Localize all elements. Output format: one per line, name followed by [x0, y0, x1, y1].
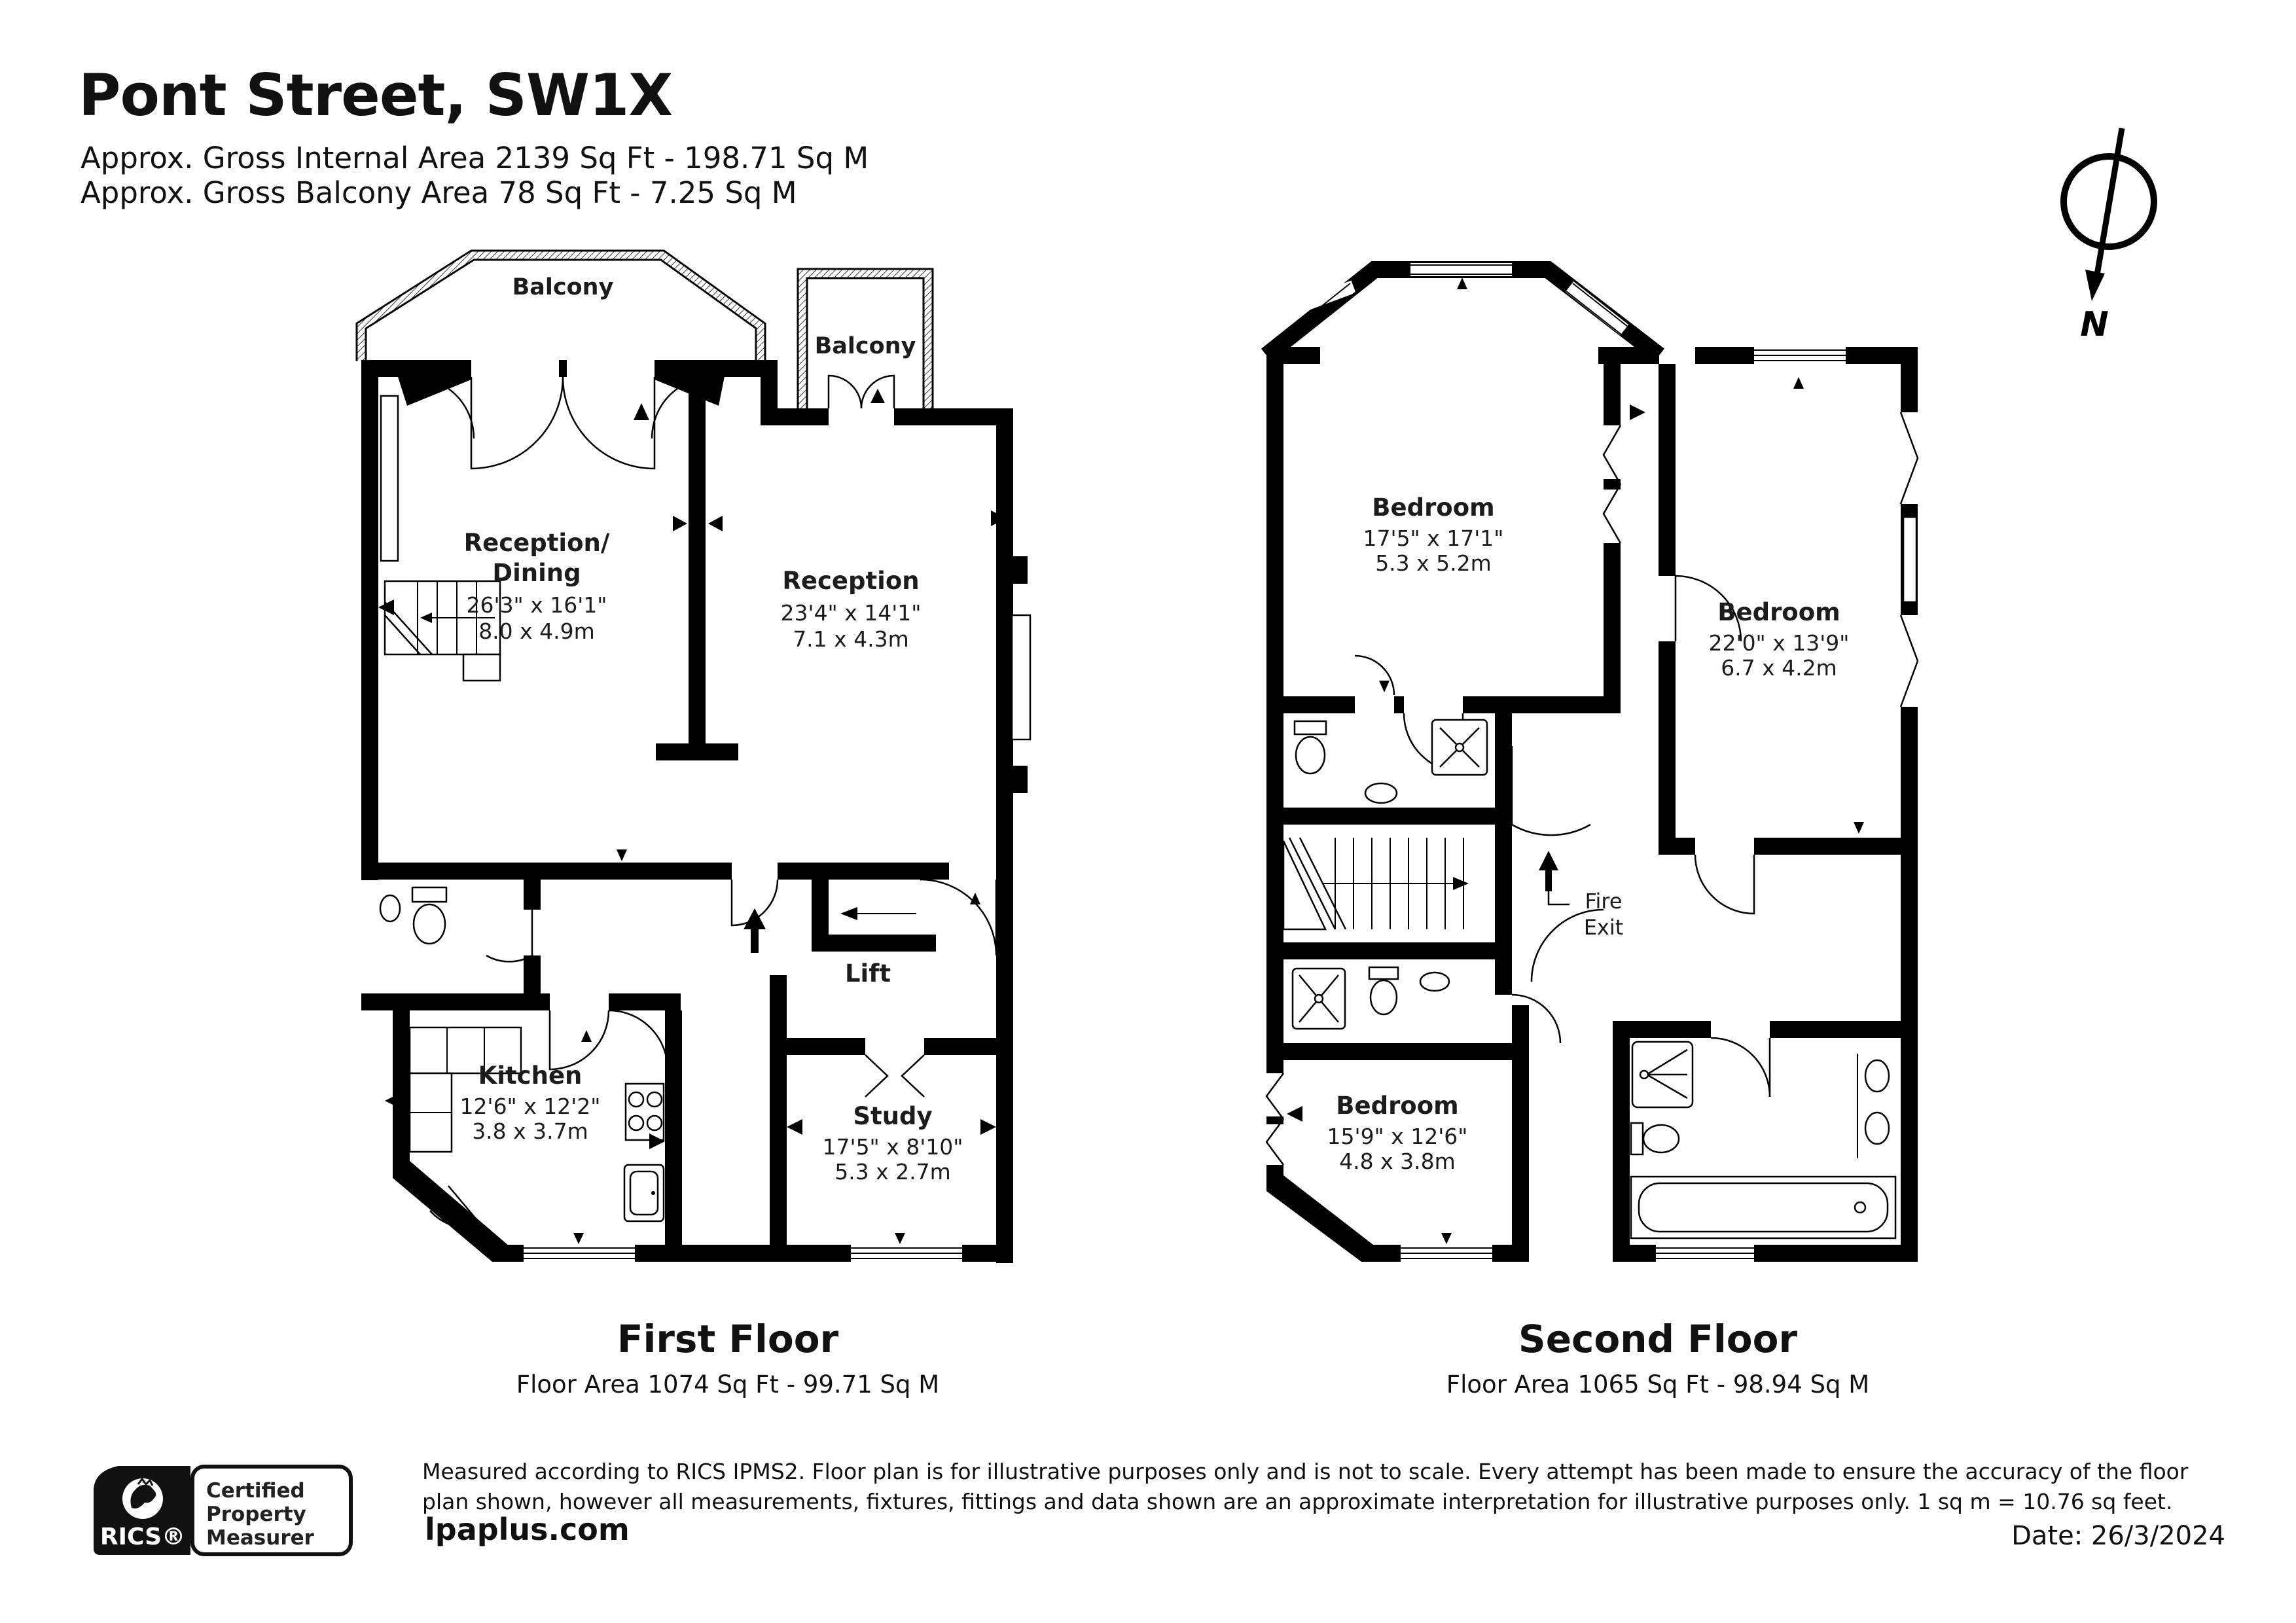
badge-line2: Property: [206, 1503, 306, 1526]
rics-certified-badge: RICS® Certified Property Measurer: [92, 1465, 354, 1556]
study-window: [851, 1243, 962, 1263]
chevron-windows-bedroom3: [1266, 1073, 1283, 1165]
gross-balcony-area: Approx. Gross Balcony Area 78 Sq Ft - 7.…: [81, 175, 797, 210]
lift-arrow-icon: [840, 907, 916, 920]
bedroom2-label: Bedroom 22'0" x 13'9" 6.7 x 4.2m: [1709, 598, 1850, 681]
chevron-windows-right: [1901, 412, 1918, 707]
disclaimer-text: Measured according to RICS IPMS2. Floor …: [422, 1457, 2238, 1516]
first-floor-plan: Balcony Balcony Reception/ Dining 26'3" …: [105, 249, 1047, 1276]
bedroom1-label: Bedroom 17'5" x 17'1" 5.3 x 5.2m: [1363, 493, 1504, 576]
svg-text:26'3" x 16'1": 26'3" x 16'1": [467, 592, 607, 618]
north-label: N: [2080, 305, 2109, 344]
second-floor-plan: Bedroom 17'5" x 17'1" 5.3 x 5.2m Bedroom…: [1237, 249, 1990, 1276]
bay-window-walls: [1237, 265, 1659, 355]
bedroom2-window: [1754, 346, 1846, 365]
svg-text:5.3 x 2.7m: 5.3 x 2.7m: [834, 1159, 951, 1185]
bedroom3-label: Bedroom 15'9" x 12'6" 4.8 x 3.8m: [1327, 1092, 1468, 1174]
first-floor-caption: First Floor Floor Area 1074 Sq Ft - 99.7…: [270, 1317, 1186, 1399]
balcony-left-label: Balcony: [512, 274, 614, 300]
bathroom-window: [1656, 1243, 1754, 1263]
svg-text:5.3 x 5.2m: 5.3 x 5.2m: [1375, 550, 1492, 576]
svg-text:17'5" x 17'1": 17'5" x 17'1": [1363, 526, 1504, 551]
sink-icon: [624, 1165, 664, 1221]
gross-internal-area: Approx. Gross Internal Area 2139 Sq Ft -…: [81, 141, 869, 175]
svg-text:8.0 x 4.9m: 8.0 x 4.9m: [478, 618, 595, 644]
first-floor-title: First Floor: [270, 1317, 1186, 1361]
bedroom3-window: [1401, 1243, 1492, 1263]
second-floor-title: Second Floor: [1200, 1317, 2116, 1361]
svg-text:6.7 x 4.2m: 6.7 x 4.2m: [1721, 655, 1837, 681]
svg-text:Bedroom: Bedroom: [1372, 493, 1494, 522]
ensuite-fixtures: [1295, 720, 1487, 803]
chevron-windows-left: [1604, 425, 1621, 543]
kitchen-window: [524, 1243, 635, 1263]
lift-label: Lift: [845, 959, 891, 988]
reception-label: Reception 23'4" x 14'1" 7.1 x 4.3m: [781, 567, 922, 652]
fire-exit-label: Fire Exit: [1584, 889, 1624, 940]
svg-text:Fire: Fire: [1585, 889, 1622, 914]
svg-text:22'0" x 13'9": 22'0" x 13'9": [1709, 630, 1850, 656]
svg-text:7.1 x 4.3m: 7.1 x 4.3m: [793, 626, 909, 652]
svg-text:4.8 x 3.8m: 4.8 x 3.8m: [1339, 1149, 1456, 1174]
svg-text:17'5" x 8'10": 17'5" x 8'10": [823, 1134, 963, 1160]
second-floor-caption: Second Floor Floor Area 1065 Sq Ft - 98.…: [1200, 1317, 2116, 1399]
svg-text:23'4" x 14'1": 23'4" x 14'1": [781, 600, 922, 626]
second-floor-area: Floor Area 1065 Sq Ft - 98.94 Sq M: [1200, 1370, 2116, 1399]
shower-room-fixtures: [1293, 967, 1449, 1029]
bath-icon: [1631, 1177, 1895, 1238]
balcony-right-label: Balcony: [815, 333, 916, 359]
floorplan-page: Pont Street, SW1X Approx. Gross Internal…: [0, 0, 2296, 1623]
shower-icon: [1432, 720, 1487, 775]
svg-text:12'6" x 12'2": 12'6" x 12'2": [460, 1094, 601, 1119]
website-label: lpaplus.com: [425, 1512, 630, 1547]
compass-icon: N: [2042, 110, 2193, 352]
hob-icon: [626, 1084, 664, 1140]
svg-text:Bedroom: Bedroom: [1336, 1092, 1458, 1120]
svg-text:Exit: Exit: [1584, 915, 1624, 940]
page-title: Pont Street, SW1X: [79, 62, 672, 129]
date-label: Date: 26/3/2024: [1903, 1521, 2225, 1551]
svg-text:Study: Study: [853, 1102, 932, 1130]
first-floor-area: Floor Area 1074 Sq Ft - 99.71 Sq M: [270, 1370, 1186, 1399]
svg-text:3.8 x 3.7m: 3.8 x 3.7m: [472, 1118, 588, 1144]
study-label: Study 17'5" x 8'10" 5.3 x 2.7m: [823, 1102, 963, 1185]
badge-line1: Certified: [206, 1479, 305, 1503]
badge-line3: Measurer: [206, 1526, 315, 1550]
shower-icon-2: [1293, 969, 1345, 1029]
kitchen-label: Kitchen 12'6" x 12'2" 3.8 x 3.7m: [460, 1061, 601, 1144]
rics-label: RICS®: [100, 1524, 185, 1550]
fire-exit-arrow-icon: [1539, 851, 1570, 904]
svg-text:Reception: Reception: [782, 567, 919, 595]
svg-text:Bedroom: Bedroom: [1717, 598, 1840, 626]
wc-fixtures: [380, 887, 446, 944]
shower-icon-3: [1632, 1042, 1693, 1107]
entry-arrow-icon: [744, 908, 766, 953]
stairs-second-floor: [1283, 838, 1469, 929]
balcony-bay-walls: [361, 255, 761, 361]
svg-text:Dining: Dining: [492, 559, 581, 587]
svg-text:15'9" x 12'6": 15'9" x 12'6": [1327, 1124, 1468, 1149]
svg-text:Reception/: Reception/: [464, 529, 610, 557]
svg-text:Kitchen: Kitchen: [478, 1061, 583, 1090]
